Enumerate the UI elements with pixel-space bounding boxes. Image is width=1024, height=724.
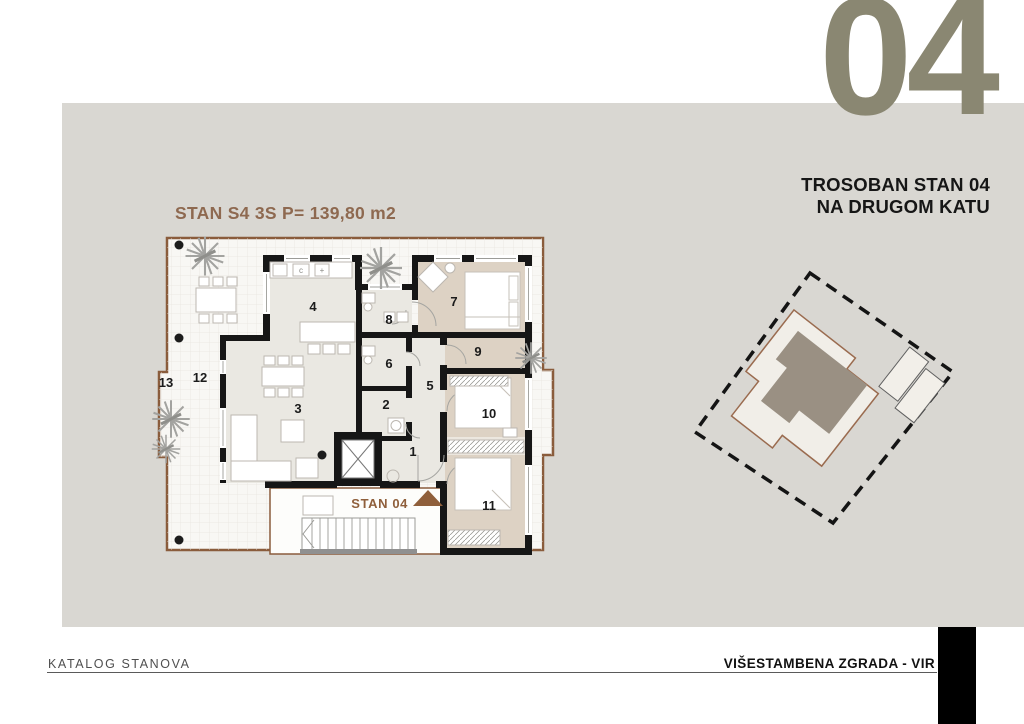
footer-rule <box>47 672 937 673</box>
room-label-4: 4 <box>309 299 317 314</box>
room-label-6: 6 <box>385 356 392 371</box>
cooktop-mark: c <box>299 266 303 275</box>
room-label-7: 7 <box>450 294 457 309</box>
footer-left-text: KATALOG STANOVA <box>48 657 191 671</box>
room-label-13: 13 <box>159 375 173 390</box>
room-label-8: 8 <box>385 312 392 327</box>
room-label-10: 10 <box>482 406 496 421</box>
sink-mark: + <box>320 266 325 275</box>
site-plan <box>660 245 990 575</box>
plan-title: STAN S4 3S P= 139,80 m2 <box>175 203 396 224</box>
floor-plan: 1 2 3 4 5 6 7 8 9 10 11 12 13 c + STAN 0… <box>140 230 570 570</box>
room-label-3: 3 <box>294 401 301 416</box>
room-label-12: 12 <box>193 370 207 385</box>
room-label-1: 1 <box>409 444 416 459</box>
room-label-11: 11 <box>482 498 496 513</box>
apartment-label: STAN 04 <box>351 496 408 511</box>
unit-number: 04 <box>819 0 994 140</box>
unit-subtitle: TROSOBAN STAN 04 NA DRUGOM KATU <box>801 174 990 217</box>
unit-subtitle-line1: TROSOBAN STAN 04 <box>801 174 990 196</box>
footer-right-text: VIŠESTAMBENA ZGRADA - VIR <box>724 656 935 671</box>
unit-subtitle-line2: NA DRUGOM KATU <box>801 196 990 218</box>
black-corner-mark <box>938 627 976 724</box>
room-label-5: 5 <box>426 378 433 393</box>
room-label-2: 2 <box>382 397 389 412</box>
elevator <box>334 432 382 486</box>
room-label-9: 9 <box>474 344 481 359</box>
stairs <box>300 518 417 554</box>
